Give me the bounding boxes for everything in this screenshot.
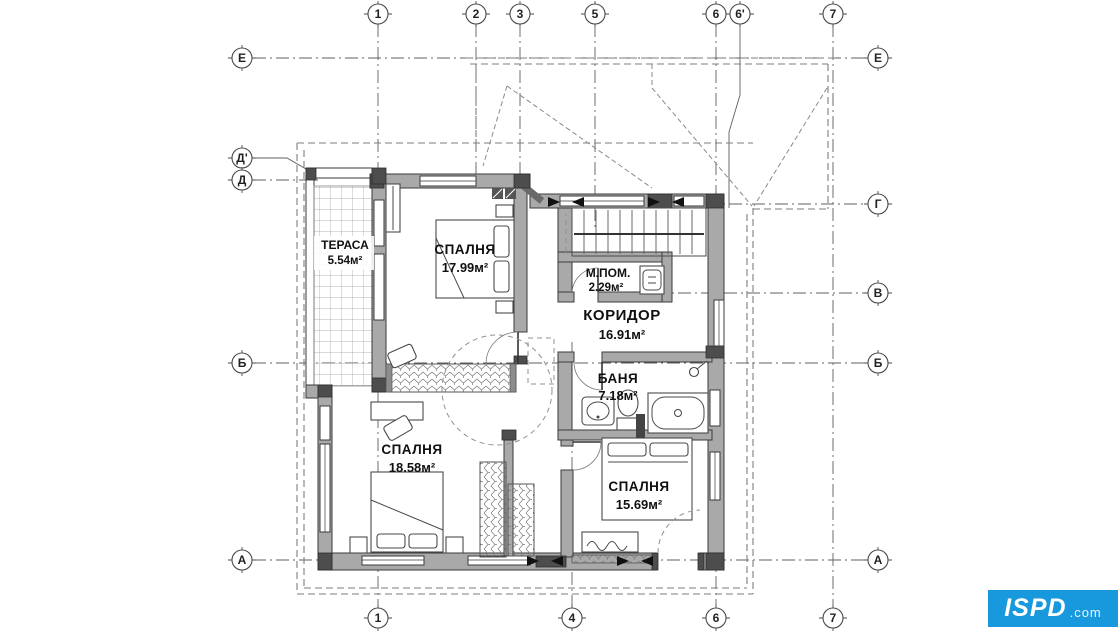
wardrobe-bedroom-left-1 [480, 462, 506, 557]
window-bottom-1 [362, 556, 424, 565]
svg-text:Е: Е [874, 51, 882, 65]
axis-right-A: А [864, 547, 892, 573]
svg-text:6': 6' [735, 7, 745, 21]
pillow [494, 261, 509, 292]
door-swing-bedroom-right [573, 442, 601, 470]
label-bedroom-top-name: СПАЛНЯ [434, 242, 495, 257]
watermark-logo: ISPD .com [988, 590, 1118, 627]
svg-text:Д': Д' [236, 151, 248, 165]
label-bathroom-area: 7.18м² [598, 388, 638, 403]
axis-right-V: В [864, 280, 892, 306]
nightstand [350, 537, 367, 553]
svg-text:А: А [874, 553, 883, 567]
axis-right-G: Г [864, 191, 892, 217]
pillow [608, 443, 646, 456]
wardrobe-bedroom-left-2 [508, 484, 534, 556]
label-bedroom-left-name: СПАЛНЯ [381, 442, 442, 457]
svg-text:Б: Б [238, 356, 247, 370]
terrace-railing [306, 168, 314, 392]
label-bathroom-name: БАНЯ [598, 371, 638, 386]
bath-partition [636, 414, 645, 438]
wall-stair-left [558, 208, 572, 252]
svg-text:4: 4 [569, 611, 576, 625]
staircase [566, 208, 706, 256]
svg-text:2: 2 [473, 7, 480, 21]
toilet-tank [617, 418, 639, 430]
label-utility-name: М.ПОМ. [586, 266, 631, 280]
wall-bath-top [602, 352, 712, 362]
axis-right-E: Е [864, 45, 892, 71]
nightstand [496, 301, 513, 313]
pillow [377, 534, 405, 548]
shaft-dashed [528, 338, 554, 384]
axis-left-E: Е [228, 45, 256, 71]
label-bedroom-left-area: 18.58м² [389, 460, 436, 475]
terrace-decking [314, 186, 372, 386]
wall-bedroom-top-right [514, 188, 527, 332]
sill-hatched [572, 555, 652, 563]
nightstand [446, 537, 463, 553]
axis-left-A: А [228, 547, 256, 573]
door-swing-bedroom-top [486, 332, 518, 364]
svg-text:1: 1 [375, 611, 382, 625]
wall-bath-left [558, 362, 572, 440]
axis-top-3: 3 [506, 1, 534, 27]
axis-top-7: 7 [819, 1, 847, 27]
label-utility-area: 2.29м² [589, 282, 624, 294]
wall-right [708, 194, 724, 570]
svg-text:5: 5 [592, 7, 599, 21]
floor-plan-canvas: ТЕРАСА 5.54м² СПАЛНЯ 17.99м² М.ПОМ. 2.29… [0, 0, 1120, 632]
axis-top-6: 6 [702, 1, 730, 27]
floor-plan-drawing: ТЕРАСА 5.54м² СПАЛНЯ 17.99м² М.ПОМ. 2.29… [0, 0, 1120, 632]
svg-text:6: 6 [713, 7, 720, 21]
pillow [650, 443, 688, 456]
roof-hip [507, 86, 652, 188]
axis-top-2: 2 [462, 1, 490, 27]
svg-text:А: А [238, 553, 247, 567]
svg-text:Б: Б [874, 356, 883, 370]
label-bedroom-top-area: 17.99м² [442, 260, 489, 275]
axis-bottom-4: 4 [558, 605, 586, 631]
desk [371, 402, 423, 420]
wardrobe-dressing [388, 364, 516, 392]
pillow [409, 534, 437, 548]
label-terrace-area: 5.54м² [328, 255, 363, 267]
axis-bottom-6: 6 [702, 605, 730, 631]
wall-utility-top [558, 252, 672, 262]
window-bath [710, 390, 720, 426]
window-terrace-2 [374, 254, 384, 320]
axis-left-B: Б [228, 350, 256, 376]
watermark-suffix: .com [1070, 605, 1102, 620]
svg-text:7: 7 [830, 7, 837, 21]
terrace [306, 168, 372, 398]
svg-text:Е: Е [238, 51, 246, 65]
label-corridor-name: КОРИДОР [583, 307, 660, 324]
pillow [494, 226, 509, 257]
axis-bottom-7: 7 [819, 605, 847, 631]
axis-left-D: Д [228, 167, 256, 193]
svg-text:В: В [874, 286, 883, 300]
nightstand [496, 205, 513, 217]
axis-bottom-1: 1 [364, 605, 392, 631]
window-terrace-1 [374, 200, 384, 246]
svg-text:1: 1 [375, 7, 382, 21]
label-bedroom-right-name: СПАЛНЯ [608, 479, 669, 494]
svg-text:3: 3 [517, 7, 524, 21]
bathtub [648, 393, 708, 433]
axis-top-1: 1 [364, 1, 392, 27]
roof-hip [483, 86, 507, 166]
svg-text:7: 7 [830, 611, 837, 625]
label-bedroom-right-area: 15.69м² [616, 497, 663, 512]
roof-hip [754, 88, 827, 206]
axis-right-B: Б [864, 350, 892, 376]
svg-text:Д: Д [238, 173, 247, 187]
axis-top-5: 5 [581, 1, 609, 27]
label-terrace-name: ТЕРАСА [321, 238, 369, 252]
label-corridor-area: 16.91м² [599, 327, 646, 342]
watermark-brand: ISPD [1004, 596, 1066, 621]
wall-bedroom-right-left [561, 470, 573, 557]
svg-text:6: 6 [713, 611, 720, 625]
window-bedroom-left-1 [320, 406, 330, 440]
svg-text:Г: Г [875, 197, 882, 211]
axis-top-6p: 6' [726, 1, 754, 27]
